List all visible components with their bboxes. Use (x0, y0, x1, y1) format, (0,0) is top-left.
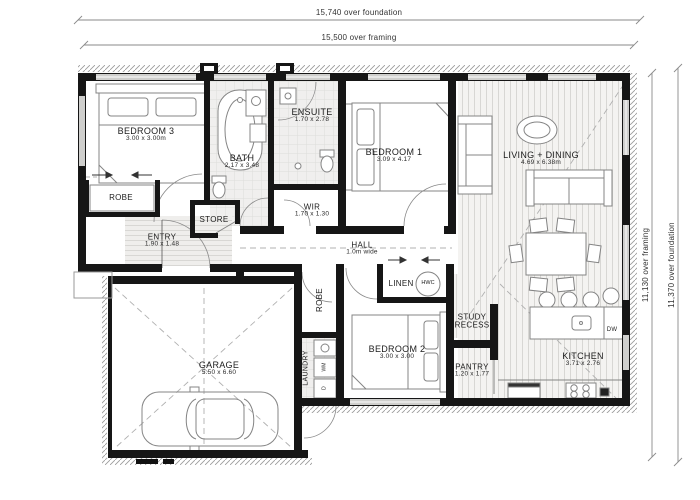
room-label-bedroom1: BEDROOM 1 3.09 x 4.17 (366, 148, 423, 164)
room-label-wir: WIR 1.70 x 1.30 (295, 203, 329, 218)
room-label-robe2: ROBE (316, 288, 324, 312)
hwc-label: HWC (421, 281, 434, 287)
room-label-laundry: LAUNDRY (302, 350, 309, 385)
room-label-store: STORE (200, 216, 229, 224)
room-label-bedroom2: BEDROOM 2 3.00 x 3.00 (369, 345, 426, 361)
dim-right-framing: 11,130 over framing (642, 228, 650, 302)
room-label-hall: HALL 1.0m wide (346, 241, 377, 256)
sofa-left (458, 116, 492, 194)
room-label-entry: ENTRY 1.90 x 1.48 (145, 233, 179, 248)
dryer-label: D (322, 386, 327, 390)
room-label-study: STUDY RECESS (455, 314, 490, 331)
dim-right-foundation: 11,370 over foundation (668, 222, 676, 308)
room-label-robe3: ROBE (109, 194, 133, 202)
room-label-bedroom3: BEDROOM 3 3.00 x 3.00m (118, 127, 175, 143)
dim-top-foundation: 15,740 over foundation (316, 9, 402, 17)
wm-label: WM (322, 363, 327, 372)
room-label-kitchen: KITCHEN 3.71 x 2.76 (562, 352, 604, 368)
garage-door-marks (136, 459, 174, 464)
dim-top-framing: 15,500 over framing (322, 34, 397, 42)
floor-plan: 15,740 over foundation 15,500 over frami… (0, 0, 700, 500)
room-label-ensuite: ENSUITE 1.70 x 2.78 (291, 108, 332, 124)
room-label-bath: BATH 2.17 x 3.48 (225, 154, 259, 170)
sofa-right (526, 170, 612, 206)
room-label-linen: LINEN (388, 280, 413, 288)
room-label-pantry: PANTRY 1.20 x 1.77 (455, 363, 489, 378)
room-label-garage: GARAGE 5.50 x 6.60 (199, 361, 239, 377)
coffee-table (517, 116, 557, 144)
car (142, 387, 278, 451)
room-label-living: LIVING + DINING 4.69 x 6.38m (503, 151, 579, 167)
dw-label: DW (607, 327, 618, 333)
